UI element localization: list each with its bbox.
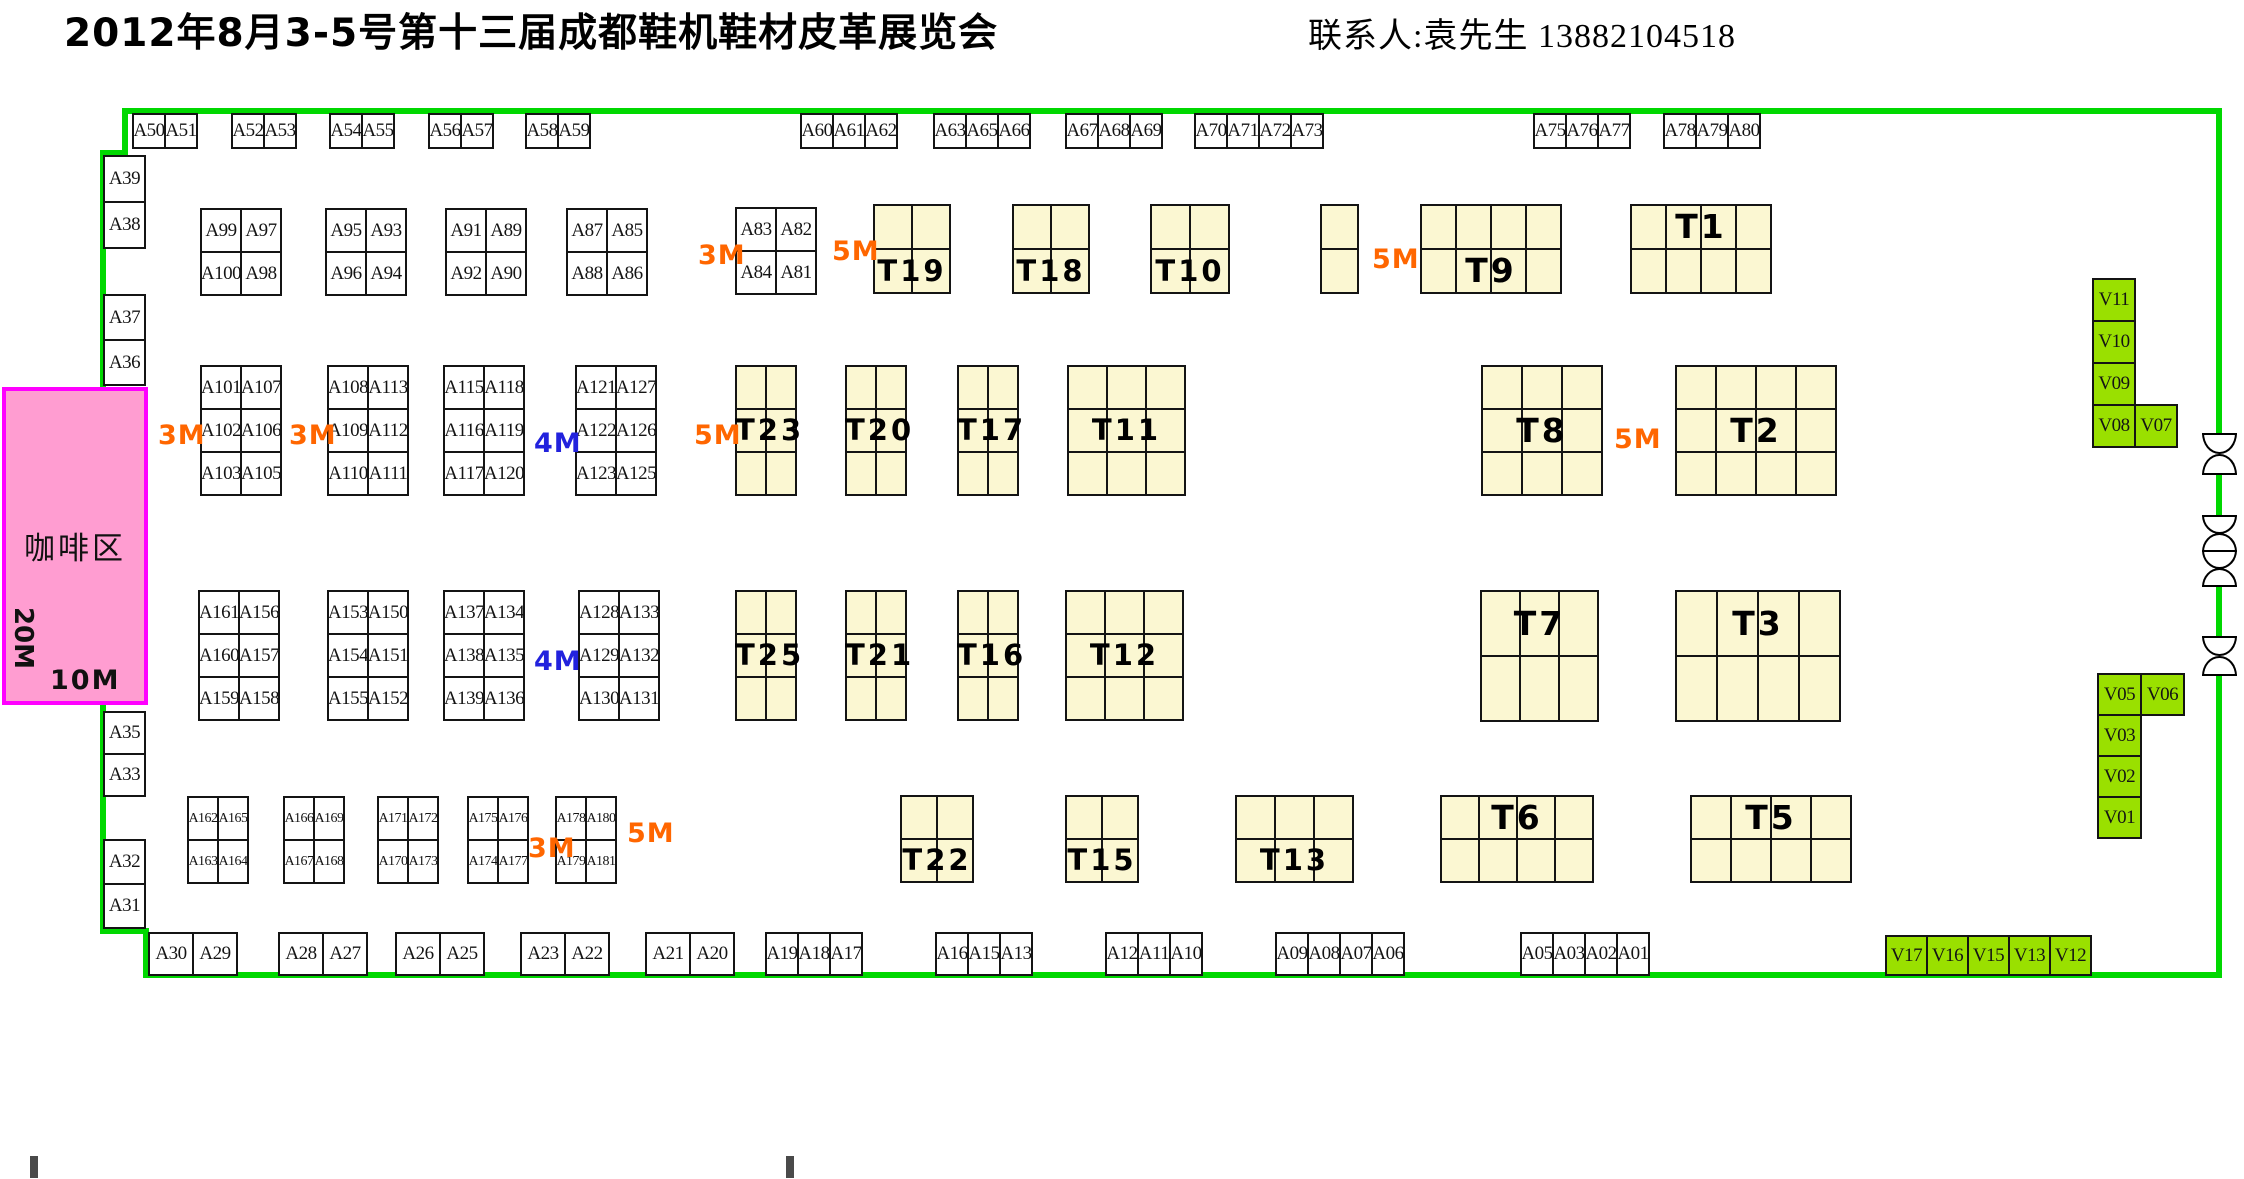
a-booth-group: A54A55 (329, 113, 395, 149)
a-booth-group: A87A85A88A86 (566, 208, 648, 296)
t-block-cell (1675, 365, 1717, 410)
t-block-t22: T22 (900, 795, 974, 883)
a-booth-group: A23A22 (520, 932, 610, 976)
booth-A71: A71 (1226, 113, 1260, 149)
t-block-label: T8 (1481, 408, 1603, 453)
aisle-dimension-label: 5M (832, 236, 880, 267)
a-booth-group: A78A79A80 (1663, 113, 1761, 149)
booth-A13: A13 (999, 932, 1033, 976)
t-block-cell (936, 795, 974, 840)
booth-A96: A96 (325, 251, 367, 296)
hall-boundary-line (122, 108, 128, 156)
t-block-cell (1675, 655, 1718, 722)
booth-A94: A94 (365, 251, 407, 296)
t-block-t21: T21 (845, 590, 907, 721)
booth-A170: A170 (377, 839, 409, 884)
t-block-t18: T18 (1012, 204, 1090, 294)
booth-A164: A164 (217, 839, 249, 884)
t-block-cell (900, 795, 938, 840)
t-block-cell (987, 590, 1019, 635)
booth-A135: A135 (483, 633, 525, 678)
t-block-cell (875, 590, 907, 635)
booth-A39: A39 (103, 155, 146, 203)
door-symbol (2202, 550, 2237, 587)
booth-A07: A07 (1339, 932, 1373, 976)
t-block-cell (1770, 838, 1812, 883)
t-block-t20: T20 (845, 365, 907, 496)
t-block-cell (1065, 676, 1106, 721)
t-block-cell (1730, 838, 1772, 883)
a-booth-group: A99A97A100A98 (200, 208, 282, 296)
aisle-dimension-label: 3M (528, 833, 576, 864)
door-symbol-top (2202, 636, 2237, 656)
booth-A81: A81 (775, 250, 817, 295)
booth-A11: A11 (1137, 932, 1171, 976)
booth-A18: A18 (797, 932, 831, 976)
booth-A89: A89 (485, 208, 527, 253)
booth-A102: A102 (200, 408, 242, 453)
a-booth-group: A75A76A77 (1533, 113, 1631, 149)
t-block-label: T16 (957, 633, 1019, 678)
t-block-cell (735, 676, 767, 721)
t-block-label: T13 (1235, 838, 1354, 883)
t-block-t1: T1 (1630, 204, 1772, 294)
t-block-t9: T9 (1420, 204, 1562, 294)
booth-A129: A129 (578, 633, 620, 678)
booth-A153: A153 (327, 590, 369, 635)
t-block-cell (1516, 838, 1556, 883)
t-block-cell (875, 676, 907, 721)
door-symbol-top (2202, 433, 2237, 454)
t-block-cell (987, 676, 1019, 721)
t-block-label: T2 (1675, 408, 1837, 453)
booth-A09: A09 (1275, 932, 1309, 976)
t-block-t5: T5 (1690, 795, 1852, 883)
booth-A138: A138 (443, 633, 485, 678)
booth-A119: A119 (483, 408, 525, 453)
booth-V16: V16 (1926, 935, 1969, 976)
t-block-t2: T2 (1675, 365, 1837, 496)
booth-A16: A16 (935, 932, 969, 976)
a-booth-group: A12A11A10 (1105, 932, 1203, 976)
booth-A15: A15 (967, 932, 1001, 976)
a-booth-group: A101A107A102A106A103A105 (200, 365, 282, 496)
booth-A08: A08 (1307, 932, 1341, 976)
booth-A38: A38 (103, 201, 146, 249)
page-margin-mark (30, 1156, 38, 1178)
t-block-cell (1145, 365, 1186, 410)
t-block (1320, 204, 1359, 294)
door-symbol-top (2202, 550, 2237, 569)
booth-A101: A101 (200, 365, 242, 410)
a-booth-group: A52A53 (231, 113, 297, 149)
a-booth-group: A128A133A129A132A130A131 (578, 590, 660, 721)
booth-A90: A90 (485, 251, 527, 296)
booth-A165: A165 (217, 796, 249, 841)
booth-A126: A126 (615, 408, 657, 453)
a-booth-group: A31 (103, 883, 146, 929)
t-block-t25: T25 (735, 590, 797, 721)
t-block-cell (1521, 451, 1563, 496)
booth-A158: A158 (238, 676, 280, 721)
t-block-cell (1561, 451, 1603, 496)
floor-plan: 2012年8月3-5号第十三届成都鞋机鞋材皮革展览会 联系人:袁先生 13882… (0, 0, 2244, 1179)
t-block-cell (1150, 204, 1191, 250)
t-block-cell (987, 451, 1019, 496)
t-block-cell (1104, 676, 1145, 721)
booth-A127: A127 (615, 365, 657, 410)
t-block-cell (957, 365, 989, 410)
a-booth-group: A56A57 (428, 113, 494, 149)
booth-A131: A131 (618, 676, 660, 721)
booth-A107: A107 (240, 365, 282, 410)
booth-A17: A17 (829, 932, 863, 976)
booth-V12: V12 (2049, 935, 2092, 976)
booth-A25: A25 (439, 932, 485, 976)
door-symbol (2202, 433, 2237, 475)
booth-A85: A85 (606, 208, 648, 253)
a-booth-group: A58A59 (525, 113, 591, 149)
t-block-cell (1065, 590, 1106, 635)
booth-A166: A166 (283, 796, 315, 841)
t-block-t8: T8 (1481, 365, 1603, 496)
booth-A32: A32 (103, 839, 146, 885)
booth-A72: A72 (1258, 113, 1292, 149)
t-block-label: T3 (1675, 590, 1841, 657)
booth-A120: A120 (483, 451, 525, 496)
t-block-cell (957, 676, 989, 721)
aisle-dimension-label: 3M (158, 420, 206, 451)
booth-A150: A150 (367, 590, 409, 635)
aisle-dimension-label: 4M (534, 428, 582, 459)
t-block-cell (1145, 451, 1186, 496)
coffee-depth-label: 20M (8, 607, 38, 669)
contact-info: 联系人:袁先生 13882104518 (1308, 8, 1736, 57)
booth-A03: A03 (1552, 932, 1586, 976)
booth-A175: A175 (467, 796, 499, 841)
booth-A130: A130 (578, 676, 620, 721)
t-block-t13: T13 (1235, 795, 1354, 883)
booth-A173: A173 (407, 839, 439, 884)
t-block-cell (735, 365, 767, 410)
t-block-cell (1561, 365, 1603, 410)
booth-A55: A55 (361, 113, 395, 149)
t-block-cell (1420, 204, 1457, 250)
booth-V03: V03 (2097, 714, 2142, 757)
booth-V10: V10 (2092, 320, 2136, 364)
booth-A60: A60 (800, 113, 834, 149)
booth-A73: A73 (1290, 113, 1324, 149)
booth-V15: V15 (1967, 935, 2010, 976)
booth-A118: A118 (483, 365, 525, 410)
booth-A171: A171 (377, 796, 409, 841)
t-block-cell (1065, 795, 1103, 840)
t-block-cell (1690, 838, 1732, 883)
t-block-cell (1481, 365, 1523, 410)
a-booth-group: A115A118A116A119A117A120 (443, 365, 525, 496)
a-booth-group: A70A71A72A73 (1194, 113, 1324, 149)
t-block-cell (957, 590, 989, 635)
booth-A93: A93 (365, 208, 407, 253)
t-block-cell (1755, 365, 1797, 410)
t-block-t19: T19 (873, 204, 951, 294)
booth-A115: A115 (443, 365, 485, 410)
booth-A134: A134 (483, 590, 525, 635)
booth-A133: A133 (618, 590, 660, 635)
booth-A132: A132 (618, 633, 660, 678)
booth-A05: A05 (1520, 932, 1554, 976)
booth-A82: A82 (775, 207, 817, 252)
t-block-cell (1558, 655, 1599, 722)
booth-V11: V11 (2092, 278, 2136, 322)
booth-V08: V08 (2092, 404, 2136, 448)
t-block-cell (1101, 795, 1139, 840)
booth-A35: A35 (103, 711, 146, 755)
booth-A27: A27 (322, 932, 368, 976)
a-booth-group: A63A65A66 (933, 113, 1031, 149)
v-booth-group: V03V02V01 (2097, 714, 2142, 839)
door-symbol-top (2202, 515, 2237, 534)
booth-A99: A99 (200, 208, 242, 253)
booth-A136: A136 (483, 676, 525, 721)
t-block-label: T18 (1012, 248, 1090, 294)
aisle-dimension-label: 3M (698, 240, 746, 271)
booth-A37: A37 (103, 294, 146, 341)
booth-A155: A155 (327, 676, 369, 721)
booth-A51: A51 (164, 113, 198, 149)
booth-A100: A100 (200, 251, 242, 296)
booth-A105: A105 (240, 451, 282, 496)
booth-A167: A167 (283, 839, 315, 884)
door-symbol-bottom (2202, 568, 2237, 587)
booth-A57: A57 (460, 113, 494, 149)
booth-A58: A58 (525, 113, 559, 149)
aisle-dimension-label: 5M (694, 420, 742, 451)
t-block-cell (845, 451, 877, 496)
booth-A01: A01 (1616, 932, 1650, 976)
t-block-cell (1757, 655, 1800, 722)
a-booth-group: A16A15A13 (935, 932, 1033, 976)
t-block-cell (765, 676, 797, 721)
t-block-cell (1525, 204, 1562, 250)
t-block-cell (911, 204, 951, 250)
aisle-dimension-label: 5M (627, 818, 675, 849)
a-booth-group: A32 (103, 839, 146, 885)
booth-A111: A111 (367, 451, 409, 496)
booth-A63: A63 (933, 113, 967, 149)
booth-A163: A163 (187, 839, 219, 884)
booth-V09: V09 (2092, 362, 2136, 406)
t-block-cell (1106, 365, 1147, 410)
t-block-label: T5 (1690, 795, 1852, 840)
t-block-cell (1313, 795, 1354, 840)
booth-A29: A29 (192, 932, 238, 976)
booth-A54: A54 (329, 113, 363, 149)
t-block-cell (1519, 655, 1560, 722)
booth-A112: A112 (367, 408, 409, 453)
v-booth-group: V17V16V15V13V12 (1885, 935, 2092, 976)
t-block-cell (1810, 838, 1852, 883)
a-booth-group: A83A82A84A81 (735, 207, 817, 295)
t-block-label: T25 (735, 633, 797, 678)
booth-A30: A30 (148, 932, 194, 976)
a-booth-group: A09A08A07A06 (1275, 932, 1405, 976)
coffee-area-label: 咖啡区 (6, 523, 144, 568)
booth-A88: A88 (566, 251, 608, 296)
page-margin-mark (786, 1156, 794, 1178)
door-symbol (2202, 515, 2237, 552)
t-block-label: T23 (735, 408, 797, 453)
booth-A103: A103 (200, 451, 242, 496)
booth-A97: A97 (240, 208, 282, 253)
booth-A36: A36 (103, 339, 146, 386)
booth-A86: A86 (606, 251, 648, 296)
booth-A26: A26 (395, 932, 441, 976)
booth-V05: V05 (2097, 673, 2142, 716)
t-block-cell (1675, 451, 1717, 496)
t-block-label (1320, 204, 1359, 250)
aisle-dimension-label: 4M (534, 646, 582, 677)
hall-boundary-line (2216, 587, 2222, 638)
booth-A02: A02 (1584, 932, 1618, 976)
booth-A62: A62 (864, 113, 898, 149)
booth-A125: A125 (615, 451, 657, 496)
booth-V13: V13 (2008, 935, 2051, 976)
t-block-cell (1795, 451, 1837, 496)
t-block-cell (845, 365, 877, 410)
booth-A160: A160 (198, 633, 240, 678)
t-block-cell (1481, 451, 1523, 496)
t-block-t7: T7 (1480, 590, 1599, 722)
a-booth-group: A95A93A96A94 (325, 208, 407, 296)
t-block-label: T12 (1065, 633, 1184, 678)
t-block-label: T15 (1065, 838, 1139, 883)
booth-A31: A31 (103, 883, 146, 929)
booth-A10: A10 (1169, 932, 1203, 976)
aisle-dimension-label: 5M (1372, 244, 1420, 275)
t-block-cell (735, 451, 767, 496)
booth-A176: A176 (497, 796, 529, 841)
t-block-cell (735, 590, 767, 635)
booth-A117: A117 (443, 451, 485, 496)
a-booth-group: A21A20 (645, 932, 735, 976)
booth-A23: A23 (520, 932, 566, 976)
booth-A79: A79 (1695, 113, 1729, 149)
t-block-cell (1235, 795, 1276, 840)
booth-A139: A139 (443, 676, 485, 721)
a-booth-group: A30A29 (148, 932, 238, 976)
booth-V06: V06 (2140, 673, 2185, 716)
t-block-label: T10 (1150, 248, 1230, 294)
a-booth-group: A161A156A160A157A159A158 (198, 590, 280, 721)
coffee-area: 咖啡区 20M 10M (2, 387, 148, 705)
booth-A181: A181 (585, 839, 617, 884)
a-booth-group: A137A134A138A135A139A136 (443, 590, 525, 721)
hall-boundary-line (2216, 108, 2222, 435)
t-block-label: T20 (845, 408, 907, 453)
booth-A53: A53 (263, 113, 297, 149)
t-block-t10: T10 (1150, 204, 1230, 294)
booth-A172: A172 (407, 796, 439, 841)
a-booth-group: A33 (103, 753, 146, 797)
booth-A68: A68 (1097, 113, 1131, 149)
booth-A180: A180 (585, 796, 617, 841)
booth-A108: A108 (327, 365, 369, 410)
a-booth-group: A171A172A170A173 (377, 796, 439, 884)
a-booth-group: A26A25 (395, 932, 485, 976)
booth-A162: A162 (187, 796, 219, 841)
booth-V07: V07 (2134, 404, 2178, 448)
t-block-t23: T23 (735, 365, 797, 496)
t-block-label: T19 (873, 248, 951, 294)
a-booth-group: A166A169A167A168 (283, 796, 345, 884)
door-symbol-bottom (2202, 656, 2237, 676)
booth-A50: A50 (132, 113, 166, 149)
a-booth-group: A67A68A69 (1065, 113, 1163, 149)
t-block-cell (1798, 655, 1841, 722)
booth-A22: A22 (564, 932, 610, 976)
booth-A70: A70 (1194, 113, 1228, 149)
booth-A59: A59 (557, 113, 591, 149)
a-booth-group: A28A27 (278, 932, 368, 976)
booth-A61: A61 (832, 113, 866, 149)
booth-A151: A151 (367, 633, 409, 678)
t-block-cell (875, 451, 907, 496)
t-block-label: T6 (1440, 795, 1594, 840)
booth-A75: A75 (1533, 113, 1567, 149)
a-booth-group: A05A03A02A01 (1520, 932, 1650, 976)
t-block-t11: T11 (1067, 365, 1186, 496)
t-block-t16: T16 (957, 590, 1019, 721)
booth-A28: A28 (278, 932, 324, 976)
booth-A66: A66 (997, 113, 1031, 149)
t-block-cell (1067, 451, 1108, 496)
v-booth-group: V08V07 (2092, 404, 2178, 448)
t-block-t3: T3 (1675, 590, 1841, 722)
coffee-width-label: 10M (50, 665, 120, 696)
t-block-cell (1106, 451, 1147, 496)
t-block-cell (1716, 655, 1759, 722)
t-block-cell (875, 365, 907, 410)
aisle-dimension-label: 3M (289, 420, 337, 451)
booth-A33: A33 (103, 753, 146, 797)
booth-V02: V02 (2097, 755, 2142, 798)
booth-A159: A159 (198, 676, 240, 721)
booth-A106: A106 (240, 408, 282, 453)
booth-A69: A69 (1129, 113, 1163, 149)
booth-A20: A20 (689, 932, 735, 976)
t-block-cell (1795, 365, 1837, 410)
t-block-t12: T12 (1065, 590, 1184, 721)
booth-A95: A95 (325, 208, 367, 253)
t-block-cell (1320, 248, 1359, 294)
t-block-cell (1735, 248, 1772, 294)
t-block-cell (1455, 204, 1492, 250)
a-booth-group: A121A127A122A126A123A125 (575, 365, 657, 496)
t-block-label: T22 (900, 838, 974, 883)
t-block-cell (1143, 590, 1184, 635)
a-booth-group: A91A89A92A90 (445, 208, 527, 296)
booth-A152: A152 (367, 676, 409, 721)
a-booth-group: A35 (103, 711, 146, 755)
booth-A128: A128 (578, 590, 620, 635)
booth-A67: A67 (1065, 113, 1099, 149)
booth-A113: A113 (367, 365, 409, 410)
hall-boundary-line (2216, 676, 2222, 976)
a-booth-group: A175A176A174A177 (467, 796, 529, 884)
t-block-label: T17 (957, 408, 1019, 453)
t-block-cell (765, 451, 797, 496)
